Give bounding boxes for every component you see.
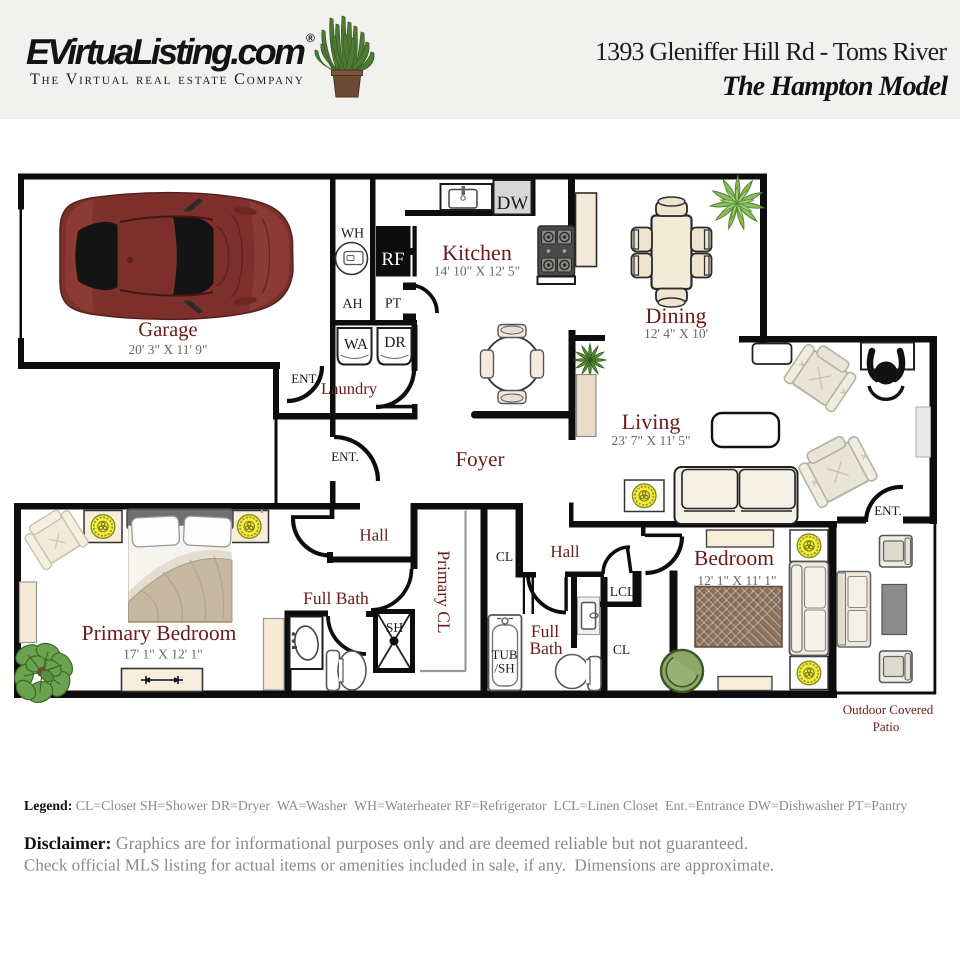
svg-text:14' 10" X 12' 5": 14' 10" X 12' 5" bbox=[434, 264, 520, 279]
svg-text:1393 Gleniffer Hill Rd - Toms: 1393 Gleniffer Hill Rd - Toms River bbox=[595, 37, 947, 66]
svg-text:Disclaimer: Graphics are for i: Disclaimer: Graphics are for information… bbox=[24, 833, 748, 853]
svg-text:Bath: Bath bbox=[529, 638, 562, 658]
svg-text:12' 1" X 11' 1": 12' 1" X 11' 1" bbox=[697, 573, 776, 588]
svg-text:ENT.: ENT. bbox=[874, 503, 902, 518]
svg-text:Kitchen: Kitchen bbox=[442, 240, 512, 265]
svg-text:Dining: Dining bbox=[645, 303, 706, 328]
svg-text:Full Bath: Full Bath bbox=[303, 588, 369, 608]
svg-text:Hall: Hall bbox=[550, 542, 580, 561]
svg-text:EVirtuaListing.com: EVirtuaListing.com bbox=[26, 31, 306, 72]
svg-text:Primary Bedroom: Primary Bedroom bbox=[82, 621, 237, 645]
svg-text:Outdoor Covered: Outdoor Covered bbox=[843, 702, 934, 717]
svg-text:DW: DW bbox=[497, 193, 529, 214]
svg-text:WA: WA bbox=[344, 336, 369, 353]
svg-text:The Virtual real estate Compan: The Virtual real estate Company bbox=[30, 71, 304, 88]
svg-text:RF: RF bbox=[381, 249, 404, 270]
svg-text:LCL: LCL bbox=[610, 584, 636, 599]
svg-text:AH: AH bbox=[342, 297, 362, 312]
svg-text:ENT.: ENT. bbox=[291, 371, 319, 386]
svg-text:CL: CL bbox=[613, 642, 630, 657]
svg-text:PT: PT bbox=[385, 297, 402, 312]
svg-text:SH: SH bbox=[386, 620, 404, 635]
svg-text:CL: CL bbox=[496, 549, 513, 564]
svg-text:Laundry: Laundry bbox=[321, 379, 378, 398]
svg-text:Patio: Patio bbox=[873, 719, 900, 734]
svg-text:Hall: Hall bbox=[359, 526, 389, 545]
svg-text:Bedroom: Bedroom bbox=[694, 546, 774, 570]
svg-text:Living: Living bbox=[622, 409, 681, 434]
svg-text:23' 7" X 11' 5": 23' 7" X 11' 5" bbox=[611, 433, 690, 448]
svg-text:Primary CL: Primary CL bbox=[434, 550, 454, 633]
svg-text:12' 4" X 10': 12' 4" X 10' bbox=[644, 326, 708, 341]
svg-text:Foyer: Foyer bbox=[456, 447, 505, 471]
svg-text:®: ® bbox=[306, 31, 315, 45]
svg-text:ENT.: ENT. bbox=[331, 449, 359, 464]
svg-text:17' 1" X 12' 1": 17' 1" X 12' 1" bbox=[123, 647, 203, 662]
svg-text:The Hampton Model: The Hampton Model bbox=[722, 71, 948, 102]
svg-text:Garage: Garage bbox=[138, 319, 197, 341]
svg-text:WH: WH bbox=[341, 227, 364, 242]
svg-text:20' 3" X 11' 9": 20' 3" X 11' 9" bbox=[128, 342, 207, 357]
svg-text:Legend: CL=Closet SH=Shower DR: Legend: CL=Closet SH=Shower DR=Dryer WA=… bbox=[24, 798, 907, 814]
svg-text:/SH: /SH bbox=[494, 661, 514, 676]
svg-text:Check official MLS listing for: Check official MLS listing for actual it… bbox=[24, 856, 774, 875]
svg-text:DR: DR bbox=[384, 334, 406, 351]
